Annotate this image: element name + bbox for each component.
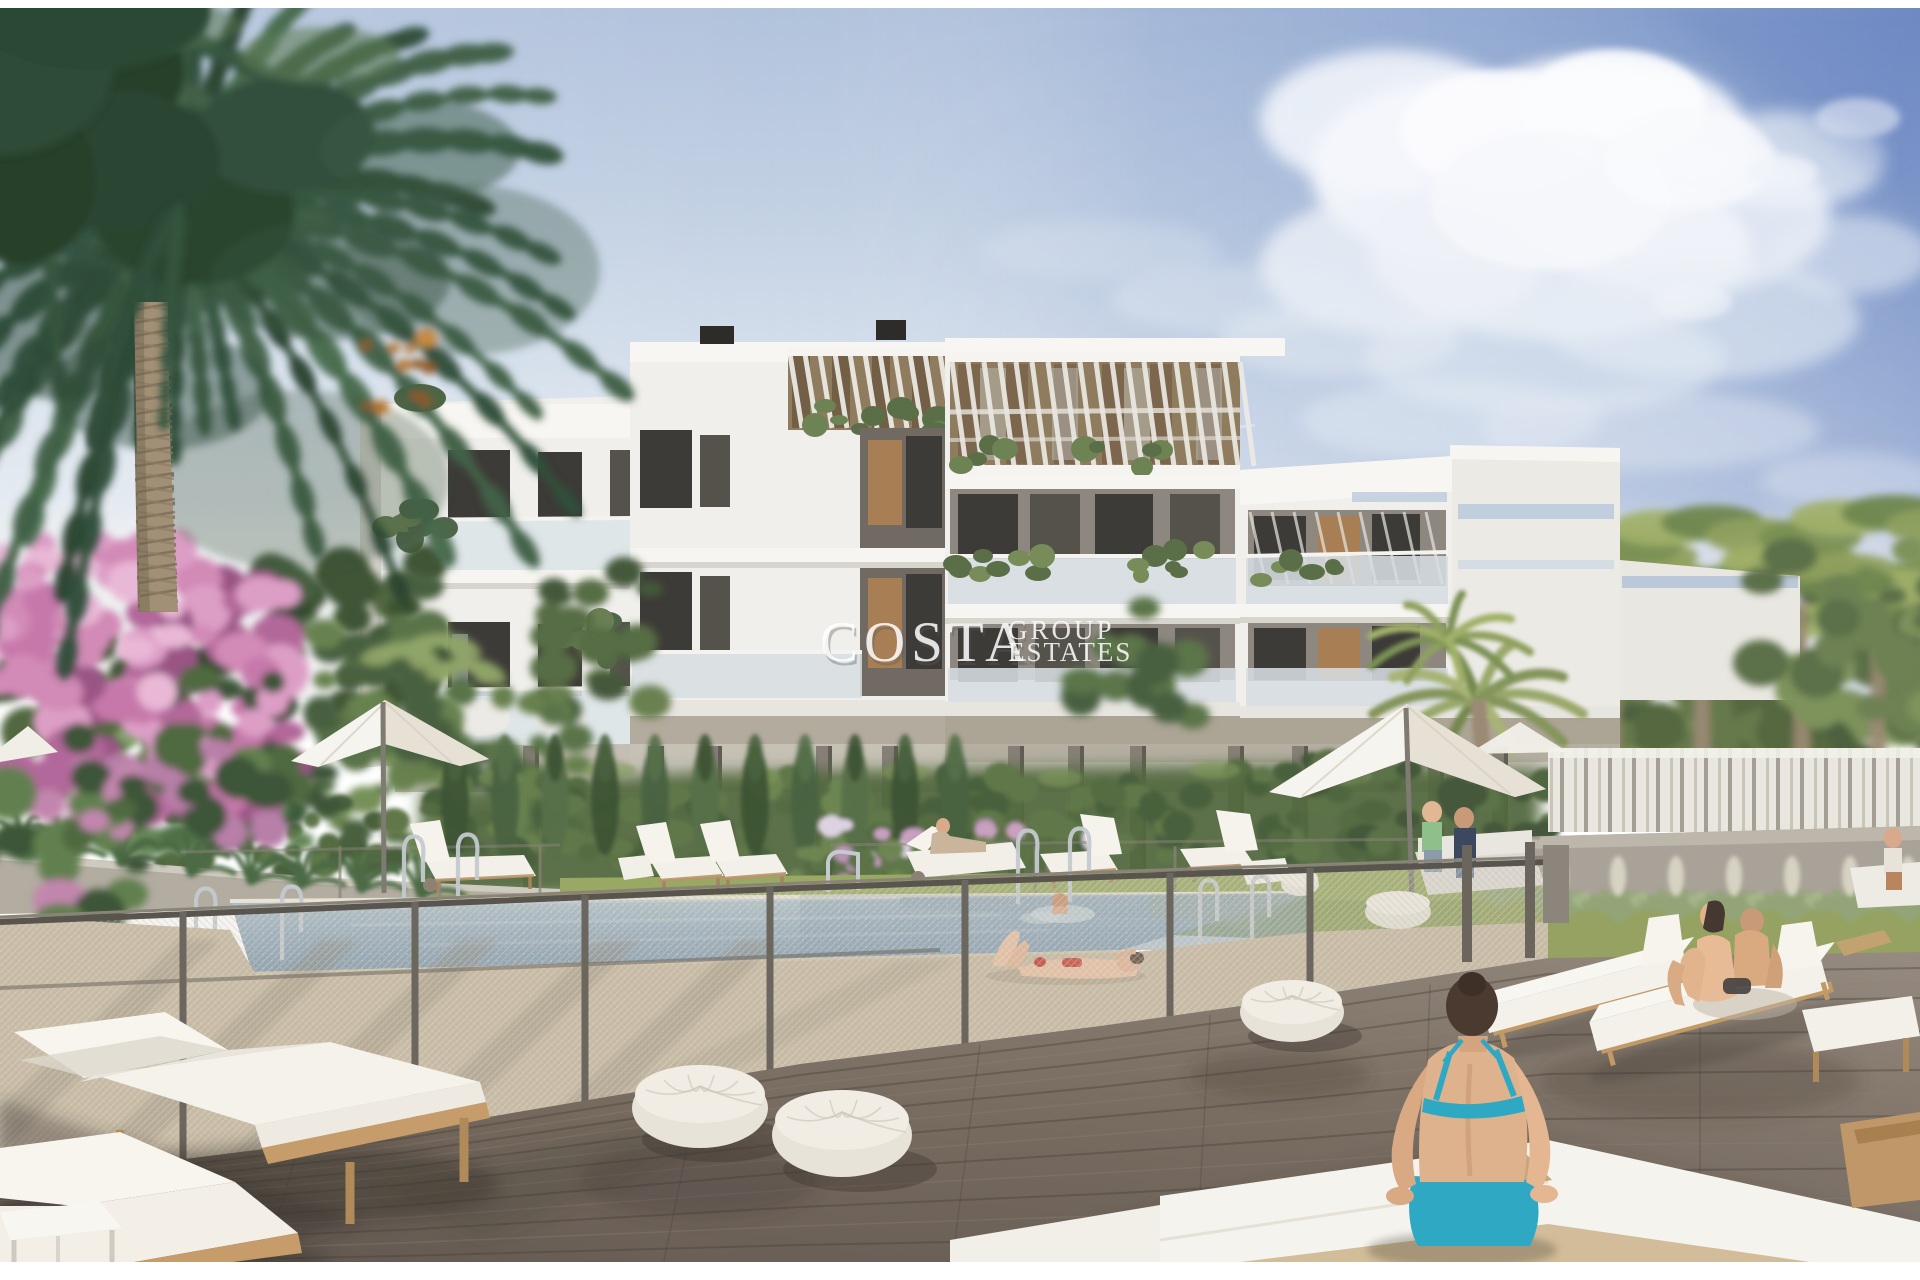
svg-text:ESTATES: ESTATES <box>1008 637 1132 667</box>
svg-text:COSTA: COSTA <box>820 611 1032 674</box>
